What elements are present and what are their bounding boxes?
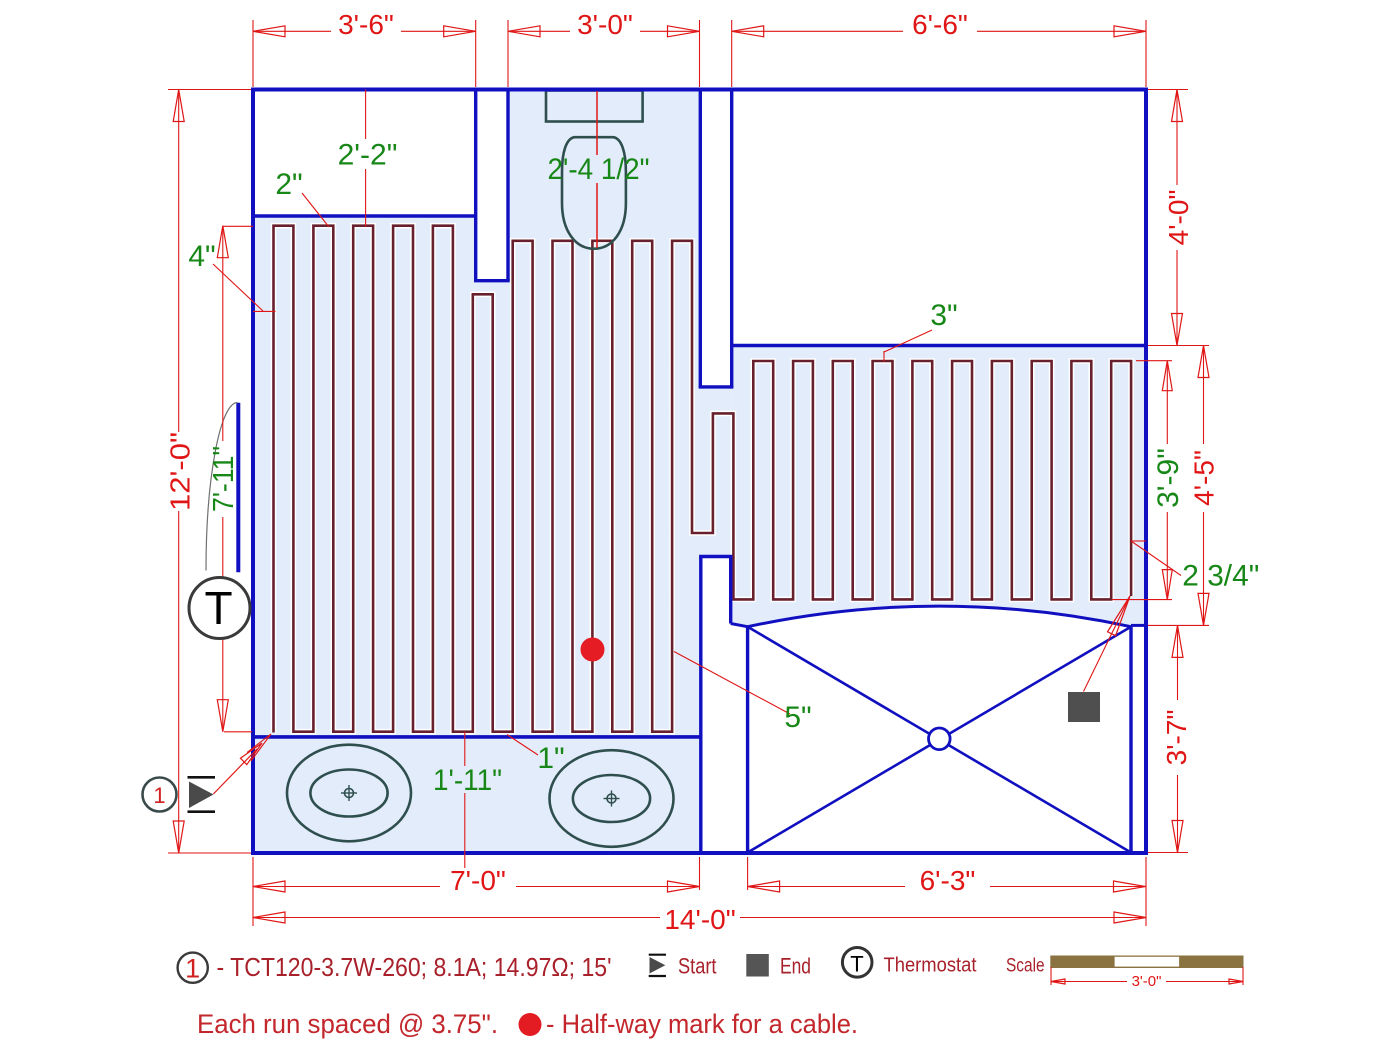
svg-text:End: End [780, 954, 811, 979]
svg-text:6'-3": 6'-3" [920, 865, 976, 896]
svg-text:Each run spaced @ 3.75".: Each run spaced @ 3.75". [197, 1009, 498, 1039]
svg-text:1: 1 [185, 954, 200, 984]
svg-text:Start: Start [678, 954, 717, 979]
svg-text:14'-0": 14'-0" [664, 904, 735, 935]
svg-text:4": 4" [188, 240, 215, 273]
svg-text:2": 2" [275, 168, 302, 201]
svg-text:4'-0": 4'-0" [1163, 190, 1194, 246]
svg-text:T: T [850, 951, 863, 976]
svg-text:- Half-way mark for a cable.: - Half-way mark for a cable. [546, 1009, 858, 1039]
svg-text:7'-0": 7'-0" [450, 865, 506, 896]
svg-text:1'-11": 1'-11" [433, 764, 502, 797]
svg-text:Thermostat: Thermostat [884, 954, 977, 977]
svg-text:- TCT120-3.7W-260; 8.1A; 14.97: - TCT120-3.7W-260; 8.1A; 14.97Ω; 15' [217, 954, 612, 982]
svg-text:3'-7": 3'-7" [1161, 710, 1192, 766]
svg-text:Scale: Scale [1006, 954, 1045, 976]
svg-text:2'-2": 2'-2" [338, 139, 398, 172]
svg-text:3'-0": 3'-0" [577, 9, 633, 40]
svg-text:6'-6": 6'-6" [912, 9, 968, 40]
svg-text:1: 1 [153, 783, 165, 808]
svg-text:3'-6": 3'-6" [338, 9, 394, 40]
svg-text:12'-0": 12'-0" [165, 432, 196, 511]
svg-text:5": 5" [784, 701, 811, 734]
svg-text:T: T [204, 582, 232, 634]
svg-text:1": 1" [537, 742, 564, 775]
svg-text:3": 3" [930, 299, 957, 332]
svg-text:7'-11": 7'-11" [208, 446, 240, 512]
svg-text:3'-9": 3'-9" [1152, 448, 1185, 508]
svg-text:3'-0": 3'-0" [1132, 973, 1162, 990]
svg-text:2 3/4": 2 3/4" [1182, 560, 1259, 593]
svg-text:2'-4 1/2": 2'-4 1/2" [548, 153, 650, 186]
svg-text:4'-5": 4'-5" [1189, 450, 1220, 506]
